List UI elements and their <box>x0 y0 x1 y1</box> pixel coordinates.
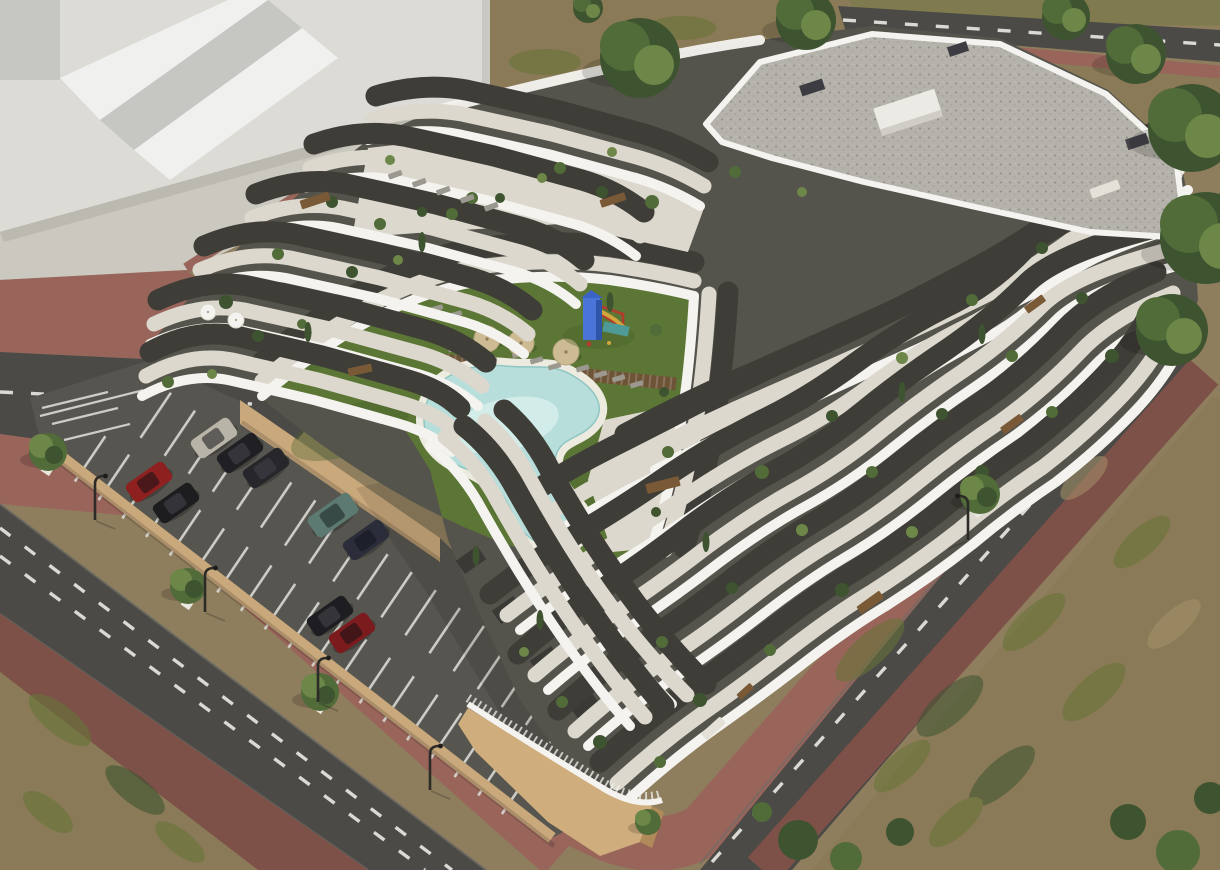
playground-ball <box>607 341 611 345</box>
white-parasol <box>200 304 216 320</box>
massing-corner-block <box>0 0 60 80</box>
architectural-rendering <box>0 0 1220 870</box>
rendering-canvas <box>0 0 1220 870</box>
playground-ball <box>587 342 592 347</box>
white-parasol <box>228 312 244 328</box>
playground-tower-side <box>596 300 602 340</box>
